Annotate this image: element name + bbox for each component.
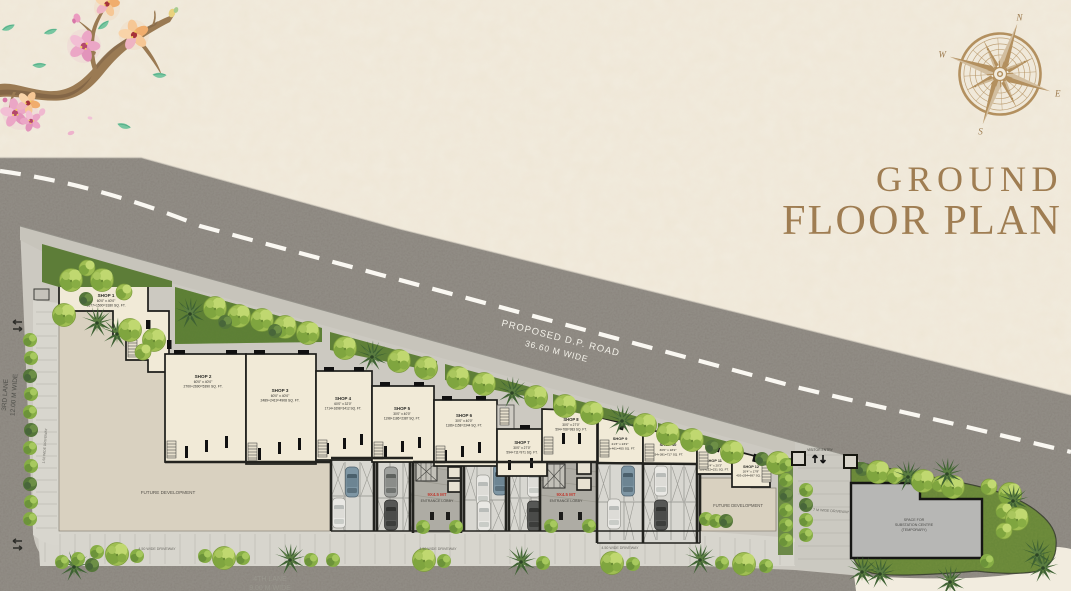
svg-text:N: N <box>1016 12 1024 22</box>
svg-text:9X4.5 MT: 9X4.5 MT <box>427 492 446 497</box>
svg-text:594+768=983 SQ. FT.: 594+768=983 SQ. FT. <box>555 428 586 432</box>
svg-text:4.50 WIDE DRIVEWAY: 4.50 WIDE DRIVEWAY <box>419 547 457 551</box>
svg-text:9X4.5 MT: 9X4.5 MT <box>556 492 575 497</box>
svg-text:FLOOR PLAN: FLOOR PLAN <box>782 198 1062 244</box>
svg-text:1198+1186=2387 SQ. FT.: 1198+1186=2387 SQ. FT. <box>384 417 420 421</box>
svg-text:ENTRANCE LOBBY: ENTRANCE LOBBY <box>550 499 583 503</box>
svg-text:30'0" x 27'0": 30'0" x 27'0" <box>513 446 530 450</box>
svg-text:S: S <box>978 127 983 137</box>
svg-text:1186+1158=2344 SQ. FT.: 1186+1158=2344 SQ. FT. <box>446 424 482 428</box>
svg-text:4TH LANE: 4TH LANE <box>253 576 287 583</box>
svg-text:403+294=697 SQ. FT.: 403+294=697 SQ. FT. <box>736 474 766 478</box>
svg-text:SHOP 6: SHOP 6 <box>456 413 473 418</box>
svg-text:30'0" x 40'0": 30'0" x 40'0" <box>455 419 472 423</box>
svg-text:SHOP 9: SHOP 9 <box>613 436 628 441</box>
svg-text:SHOP 11: SHOP 11 <box>706 459 722 463</box>
svg-text:GROUND: GROUND <box>876 159 1063 199</box>
svg-text:FUTURE DEVELOPMENT: FUTURE DEVELOPMENT <box>141 490 196 495</box>
svg-text:326+461=455 SQ. FT.: 326+461=455 SQ. FT. <box>605 447 636 451</box>
svg-text:60'0" x 40'0": 60'0" x 40'0" <box>97 299 116 303</box>
svg-text:4.50 WIDE DRIVEWAY: 4.50 WIDE DRIVEWAY <box>138 547 176 551</box>
svg-text:9.00 M WIDE: 9.00 M WIDE <box>249 585 291 591</box>
svg-text:60'0" x 32'0": 60'0" x 32'0" <box>334 402 351 406</box>
svg-text:30'0" x 18'2": 30'0" x 18'2" <box>660 448 677 452</box>
svg-text:2489+2419=4908 SQ. FT.: 2489+2419=4908 SQ. FT. <box>260 399 299 403</box>
svg-text:SHOP 7: SHOP 7 <box>514 440 530 445</box>
svg-text:60'0" x 40'0": 60'0" x 40'0" <box>271 394 290 398</box>
svg-text:1677+1500=3180 SQ. FT.: 1677+1500=3180 SQ. FT. <box>86 304 125 308</box>
svg-text:4.50 WIDE DRIVEWAY: 4.50 WIDE DRIVEWAY <box>601 546 639 550</box>
svg-text:2700+2690=5390 SQ. FT.: 2700+2690=5390 SQ. FT. <box>183 385 222 389</box>
svg-text:VISITOR ENTRY: VISITOR ENTRY <box>807 448 834 452</box>
svg-text:1714+1698=3412 SQ. FT.: 1714+1698=3412 SQ. FT. <box>325 407 362 411</box>
svg-text:FUTURE DEVELOPMENT: FUTURE DEVELOPMENT <box>713 503 763 508</box>
svg-text:594+711=971 SQ. FT.: 594+711=971 SQ. FT. <box>506 451 537 455</box>
svg-text:E: E <box>1054 89 1061 99</box>
svg-text:ENTRANCE LOBBY: ENTRANCE LOBBY <box>421 499 454 503</box>
svg-text:21'3" x 23'2": 21'3" x 23'2" <box>612 442 629 446</box>
svg-text:30'0" x 27'0": 30'0" x 27'0" <box>562 423 579 427</box>
svg-text:30'0" x 40'0": 30'0" x 40'0" <box>393 412 410 416</box>
svg-text:SHOP 2: SHOP 2 <box>195 374 212 379</box>
svg-text:SHOP 3: SHOP 3 <box>272 388 289 393</box>
svg-text:(TEMPORARY): (TEMPORARY) <box>901 528 926 532</box>
svg-text:SHOP 12: SHOP 12 <box>743 465 759 469</box>
svg-text:SPACE FOR: SPACE FOR <box>904 518 925 522</box>
svg-text:SHOP 4: SHOP 4 <box>335 396 352 401</box>
svg-text:334+381=717 SQ. FT.: 334+381=717 SQ. FT. <box>653 453 684 457</box>
svg-text:SUBSTATION CENTRE: SUBSTATION CENTRE <box>895 523 934 527</box>
svg-text:SHOP 5: SHOP 5 <box>394 406 411 411</box>
svg-text:60'0" x 40'0": 60'0" x 40'0" <box>194 380 213 384</box>
svg-text:SHOP 1: SHOP 1 <box>98 293 115 298</box>
